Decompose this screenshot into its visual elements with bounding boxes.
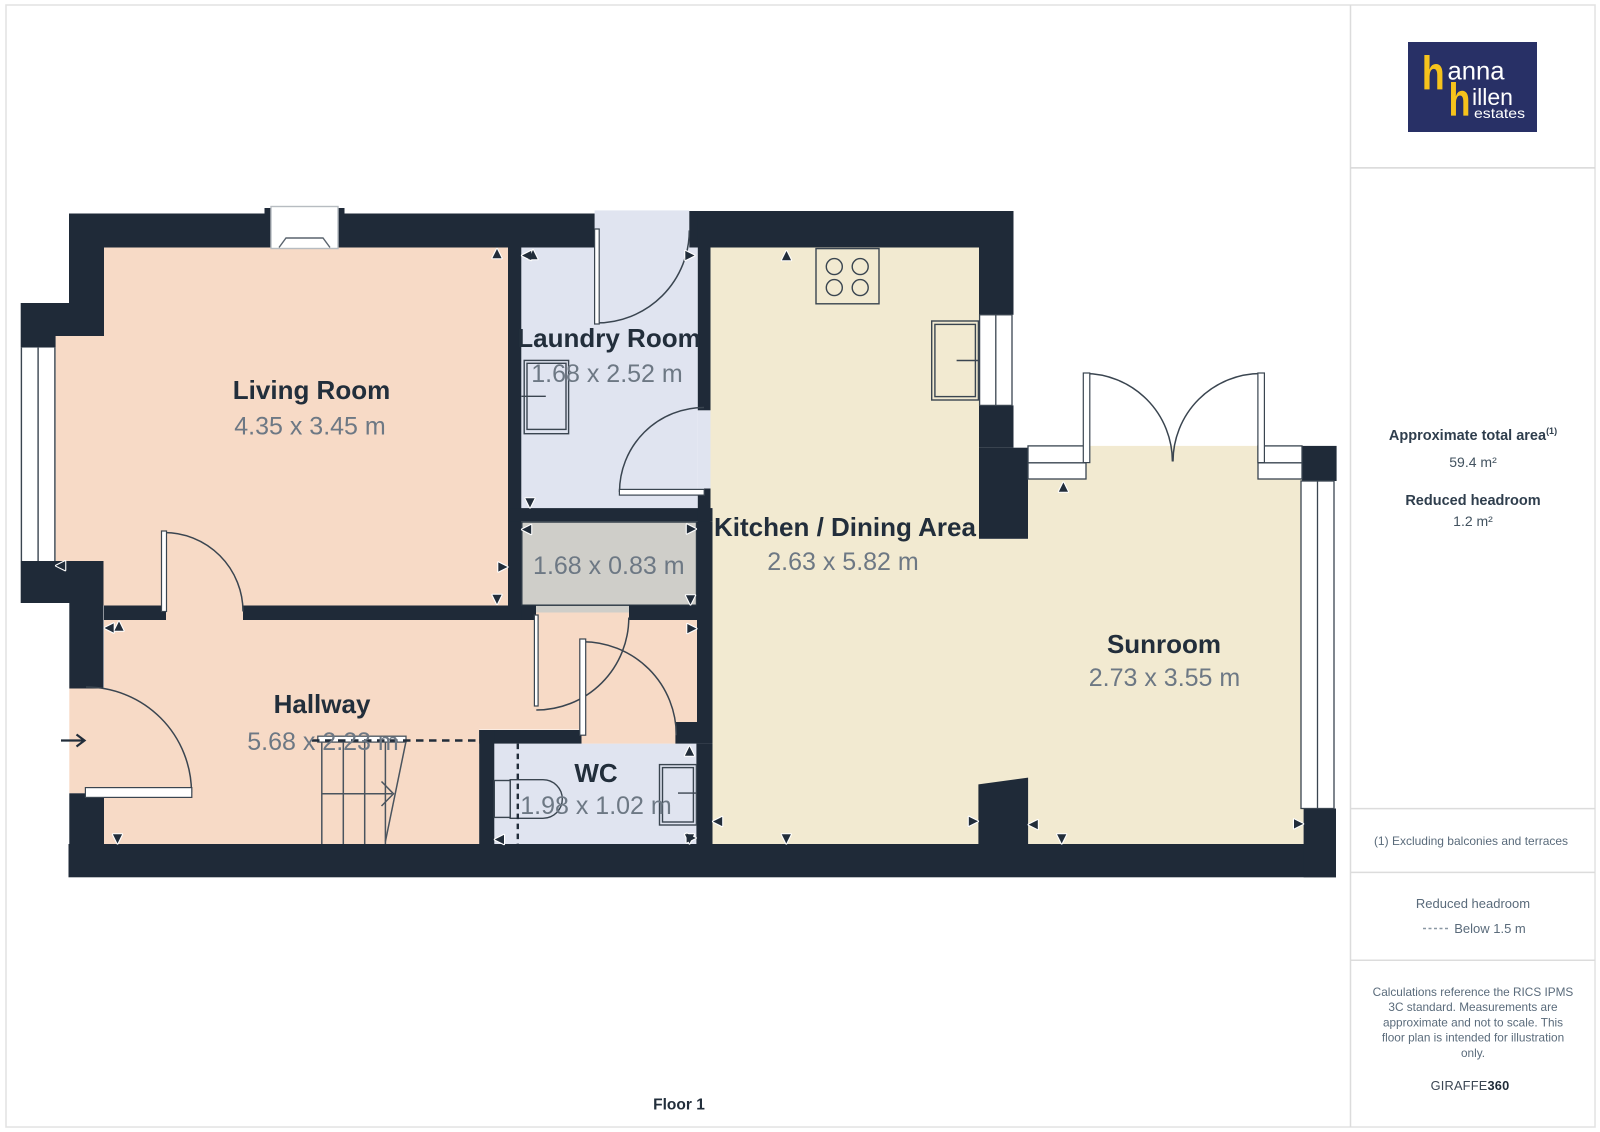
svg-text:1.98 x 1.02 m: 1.98 x 1.02 m [520, 792, 671, 820]
svg-text:only.: only. [1461, 1046, 1485, 1060]
svg-text:(1) Excluding balconies and te: (1) Excluding balconies and terraces [1374, 834, 1568, 848]
svg-text:59.4 m²: 59.4 m² [1449, 454, 1497, 470]
svg-text:1.2 m²: 1.2 m² [1453, 513, 1493, 529]
svg-text:4.35 x 3.45 m: 4.35 x 3.45 m [234, 413, 385, 441]
svg-text:Sunroom: Sunroom [1107, 629, 1221, 659]
svg-text:Below 1.5 m: Below 1.5 m [1454, 921, 1526, 936]
svg-text:3C standard. Measurements are: 3C standard. Measurements are [1388, 1000, 1558, 1014]
svg-text:Hallway: Hallway [274, 689, 371, 719]
svg-text:estates: estates [1474, 105, 1525, 121]
svg-text:GIRAFFE360: GIRAFFE360 [1431, 1078, 1510, 1093]
svg-text:Reduced headroom: Reduced headroom [1416, 896, 1530, 911]
svg-text:approximate and not to scale.: approximate and not to scale. This [1383, 1015, 1563, 1029]
svg-text:1.68 x 0.83 m: 1.68 x 0.83 m [533, 552, 684, 580]
svg-text:h: h [1449, 73, 1471, 125]
svg-text:2.73 x 3.55 m: 2.73 x 3.55 m [1089, 664, 1240, 692]
svg-text:Laundry Room: Laundry Room [517, 323, 700, 353]
svg-text:Approximate total area(1): Approximate total area(1) [1389, 426, 1557, 444]
svg-text:Calculations reference the RIC: Calculations reference the RICS IPMS [1373, 985, 1574, 999]
svg-text:Living Room: Living Room [233, 375, 390, 405]
svg-text:2.63 x 5.82 m: 2.63 x 5.82 m [767, 548, 918, 576]
svg-text:h: h [1422, 48, 1445, 101]
svg-text:floor plan is intended for ill: floor plan is intended for illustration [1382, 1031, 1564, 1045]
svg-text:Reduced headroom: Reduced headroom [1405, 493, 1540, 509]
svg-text:5.68 x 2.23 m: 5.68 x 2.23 m [247, 728, 398, 756]
svg-text:WC: WC [574, 758, 618, 788]
svg-text:1.68 x 2.52 m: 1.68 x 2.52 m [531, 360, 682, 388]
svg-text:Kitchen / Dining Area: Kitchen / Dining Area [714, 512, 976, 542]
svg-text:Floor 1: Floor 1 [653, 1097, 705, 1114]
